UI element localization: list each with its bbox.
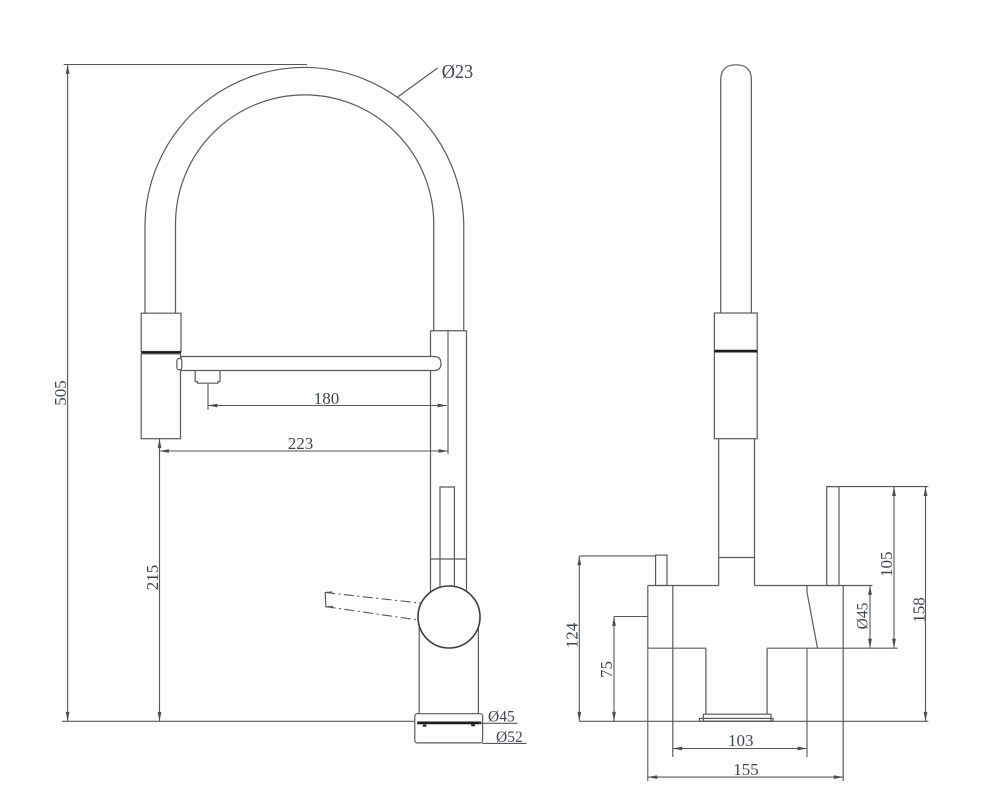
svg-text:158: 158 [910,597,929,623]
svg-text:Ø45: Ø45 [855,602,872,629]
svg-text:75: 75 [597,661,616,678]
svg-text:155: 155 [733,760,759,779]
svg-text:124: 124 [563,622,582,648]
svg-text:223: 223 [288,434,314,453]
svg-text:103: 103 [728,731,754,750]
svg-text:Ø23: Ø23 [442,61,474,83]
svg-text:505: 505 [51,380,70,406]
svg-text:215: 215 [143,565,162,591]
svg-text:105: 105 [877,552,896,578]
svg-text:180: 180 [314,389,340,408]
